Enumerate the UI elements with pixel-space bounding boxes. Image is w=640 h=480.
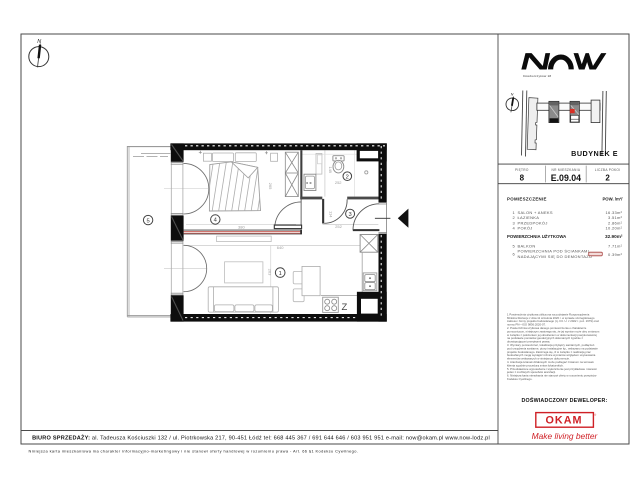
svg-text:DOŚWIADCZONY DEWELOPER:: DOŚWIADCZONY DEWELOPER:: [521, 397, 607, 404]
svg-text:149: 149: [328, 166, 333, 173]
svg-text:1: 1: [279, 271, 282, 277]
svg-text:114: 114: [329, 211, 334, 218]
svg-text:380: 380: [238, 224, 245, 229]
svg-text:Z: Z: [342, 302, 348, 313]
svg-text:LICZBA POKOI: LICZBA POKOI: [595, 168, 621, 172]
svg-text:POWIERZCHNIA UŻYTKOWA: POWIERZCHNIA UŻYTKOWA: [507, 234, 566, 239]
svg-text:BIURO SPRZEDAŻY: al. Tadeusza: BIURO SPRZEDAŻY: al. Tadeusza Kościuszki…: [32, 435, 490, 442]
svg-text:265: 265: [268, 183, 273, 190]
svg-text:POKÓJ: POKÓJ: [518, 226, 533, 231]
svg-text:640: 640: [277, 245, 284, 250]
svg-text:2: 2: [605, 174, 610, 183]
svg-text:BUDYNEK E: BUDYNEK E: [571, 149, 618, 158]
svg-text:E.09.04: E.09.04: [551, 173, 581, 183]
svg-text:252: 252: [335, 180, 342, 185]
svg-text:3: 3: [348, 212, 351, 218]
svg-text:POMIESZCZENIE: POMIESZCZENIE: [507, 197, 547, 202]
svg-text:®: ®: [594, 413, 596, 417]
svg-text:0.39m²: 0.39m²: [608, 252, 623, 257]
svg-text:PRZEDPOKÓJ: PRZEDPOKÓJ: [518, 220, 548, 225]
svg-text:NADAJĄCYMI SIĘ DO DEMONTAŻU: NADAJĄCYMI SIĘ DO DEMONTAŻU: [518, 254, 593, 259]
svg-text:Kodeksu Cywilnego.: Kodeksu Cywilnego.: [507, 377, 533, 381]
svg-text:PIĘTRO: PIĘTRO: [515, 168, 529, 172]
svg-text:252: 252: [335, 224, 342, 229]
svg-text:POWIERZCHNIA POD ŚCIANKAMI: POWIERZCHNIA POD ŚCIANKAMI: [518, 249, 590, 254]
svg-text:7.71m²: 7.71m²: [608, 243, 623, 248]
svg-text:OKAM: OKAM: [546, 415, 583, 427]
svg-text:5: 5: [146, 218, 149, 224]
svg-text:N: N: [37, 39, 41, 45]
svg-text:8: 8: [520, 174, 525, 183]
svg-text:Make living better: Make living better: [532, 431, 599, 441]
svg-text:32.90m²: 32.90m²: [605, 234, 623, 239]
svg-text:Niniejsza karta mieszkaniowa m: Niniejsza karta mieszkaniowa ma charakte…: [29, 449, 359, 454]
svg-text:NR MIESZKANIA: NR MIESZKANIA: [552, 168, 581, 172]
svg-text:263: 263: [267, 269, 272, 276]
svg-text:2: 2: [346, 174, 349, 180]
svg-text:POW. /m²/: POW. /m²/: [602, 196, 623, 201]
svg-text:Dowborczyków 18: Dowborczyków 18: [523, 74, 551, 78]
svg-text:2.86m²: 2.86m²: [608, 220, 623, 225]
svg-text:N: N: [511, 92, 514, 96]
svg-text:10.20m²: 10.20m²: [606, 226, 623, 231]
